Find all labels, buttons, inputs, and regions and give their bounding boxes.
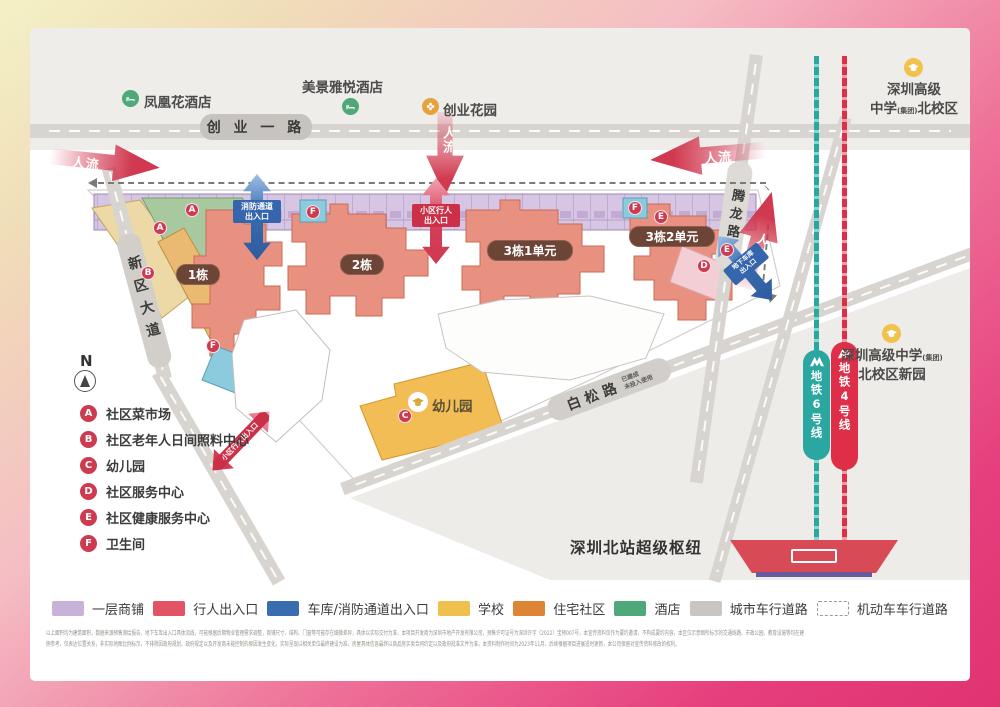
- school-icon: [882, 324, 901, 343]
- flower-icon: [425, 101, 436, 112]
- legend-label: 机动车车行道路: [857, 599, 948, 618]
- facility-row: F卫生间: [80, 535, 249, 552]
- disclaimer-line-1: 以上面积均为建筑面积，数据来源预售测绘报告，地下车库出入口具体流线，可能根据后期…: [46, 629, 970, 640]
- building-3-1-label: 3栋1单元: [487, 240, 573, 261]
- dashed-drive-arrow-left: [88, 178, 97, 188]
- site-plan-canvas: 创 业 一 路 新区大道 白松路 已建成未投入使用 腾龙路 地铁6号线 地铁4号…: [30, 28, 970, 681]
- marker-C: C: [398, 409, 412, 423]
- legend-swatch: [438, 601, 470, 616]
- building-3-2-label: 3栋2单元: [629, 226, 715, 247]
- facility-label: 社区菜市场: [106, 404, 171, 423]
- station-hub-label: 深圳北站超级枢纽: [570, 536, 702, 558]
- facility-badge: A: [80, 405, 97, 422]
- facility-row: A社区菜市场: [80, 405, 249, 422]
- school-icon: [904, 58, 923, 77]
- marker-F-2: F: [628, 201, 642, 215]
- legend-item: 一层商铺: [52, 599, 144, 618]
- legend-swatch: [690, 601, 722, 616]
- facility-badge: C: [80, 457, 97, 474]
- disclaimer-line-2: 侧参考，仅表达位置关系，非实际地图比例标示，不排除因政府规划、政府规定以及开发商…: [46, 640, 970, 651]
- kindergarten-icon: [408, 392, 428, 412]
- gradient-border-frame: 创 业 一 路 新区大道 白松路 已建成未投入使用 腾龙路 地铁6号线 地铁4号…: [0, 0, 1000, 707]
- marker-D: D: [697, 259, 711, 273]
- facility-label: 社区服务中心: [106, 482, 184, 501]
- legend-item: 酒店: [614, 599, 680, 618]
- marker-E-2: E: [720, 243, 734, 257]
- legend-label: 住宅社区: [553, 599, 605, 618]
- marker-A-2: A: [153, 221, 167, 235]
- metro-line-6: [814, 56, 819, 542]
- legend-label: 行人出入口: [193, 599, 258, 618]
- road-baisong-note: 已建成未投入使用: [621, 366, 655, 391]
- kindergarten-label: 幼儿园: [432, 395, 473, 415]
- legend-item: 城市车行道路: [690, 599, 808, 618]
- building-2-label: 2栋: [340, 254, 384, 275]
- legend-item: 机动车车行道路: [817, 599, 948, 618]
- garden-chuangye-label: 创业花园: [443, 99, 497, 119]
- legend-label: 车库/消防通道出入口: [307, 599, 428, 618]
- station-inner: [791, 549, 837, 563]
- marker-F-3: F: [206, 339, 220, 353]
- pedestrian-entrance-label: 小区行人出入口: [412, 204, 460, 227]
- bed-icon: [125, 93, 136, 104]
- bed-icon: [345, 101, 356, 112]
- marker-A-1: A: [185, 203, 199, 217]
- legend-label: 酒店: [654, 599, 680, 618]
- legend-item: 住宅社区: [513, 599, 605, 618]
- school-north-label: 深圳高级 中学(集团)北校区: [854, 81, 970, 119]
- building-1-label: 1栋: [176, 264, 220, 285]
- station-base: [756, 572, 872, 577]
- road-label-text: 创 业 一 路: [207, 117, 306, 137]
- facility-row: C幼儿园: [80, 457, 249, 474]
- graduation-cap-icon: [885, 327, 898, 340]
- road-chuangye-yi: [30, 124, 970, 138]
- facility-label: 社区老年人日间照料中心: [106, 430, 249, 449]
- legend-item: 车库/消防通道出入口: [267, 599, 428, 618]
- marker-E-1: E: [654, 210, 668, 224]
- marker-F-1: F: [306, 205, 320, 219]
- hotel-meijing-label: 美景雅悦酒店: [302, 76, 383, 96]
- facility-row: D社区服务中心: [80, 483, 249, 500]
- facility-badge: B: [80, 431, 97, 448]
- facility-badge: F: [80, 535, 97, 552]
- legend-swatch: [153, 601, 185, 616]
- fire-exit-label: 消防通道出入口: [233, 200, 281, 223]
- legend-swatch: [52, 601, 84, 616]
- legend-item: 行人出入口: [153, 599, 258, 618]
- map-legend: 一层商铺 行人出入口 车库/消防通道出入口 学校 住宅社区 酒店 城市车行道路 …: [52, 599, 948, 618]
- facility-badge: D: [80, 483, 97, 500]
- graduation-cap-icon: [411, 395, 425, 409]
- hotel-icon: [122, 90, 139, 107]
- graduation-cap-icon: [907, 61, 920, 74]
- garden-icon: [422, 98, 439, 115]
- facility-label: 卫生间: [106, 534, 145, 553]
- legend-swatch: [267, 601, 299, 616]
- legend-label: 学校: [478, 599, 504, 618]
- legend-swatch: [513, 601, 545, 616]
- road-label-text: 腾龙路: [721, 187, 747, 243]
- compass-icon: [74, 370, 96, 392]
- facility-row: B社区老年人日间照料中心: [80, 431, 249, 448]
- legend-label: 一层商铺: [92, 599, 144, 618]
- hotel-icon: [342, 98, 359, 115]
- legend-label: 城市车行道路: [730, 599, 808, 618]
- disclaimer: 以上面积均为建筑面积，数据来源预售测绘报告，地下车库出入口具体流线，可能根据后期…: [46, 629, 970, 651]
- facility-label: 幼儿园: [106, 456, 145, 475]
- hotel-phoenix-label: 凤凰花酒店: [144, 91, 212, 111]
- legend-swatch: [614, 601, 646, 616]
- compass-n-label: N: [80, 352, 93, 370]
- marker-B: B: [141, 266, 155, 280]
- school-new-label: 深圳高级中学(集团) 北校区新园: [818, 347, 966, 385]
- road-chuangye-yi-label: 创 业 一 路: [200, 114, 312, 140]
- legend-item: 学校: [438, 599, 504, 618]
- facility-row: E社区健康服务中心: [80, 509, 249, 526]
- facility-badge: E: [80, 509, 97, 526]
- facilities-key: A社区菜市场 B社区老年人日间照料中心 C幼儿园 D社区服务中心 E社区健康服务…: [80, 405, 249, 561]
- legend-swatch-dashed: [817, 601, 849, 616]
- facility-label: 社区健康服务中心: [106, 508, 210, 527]
